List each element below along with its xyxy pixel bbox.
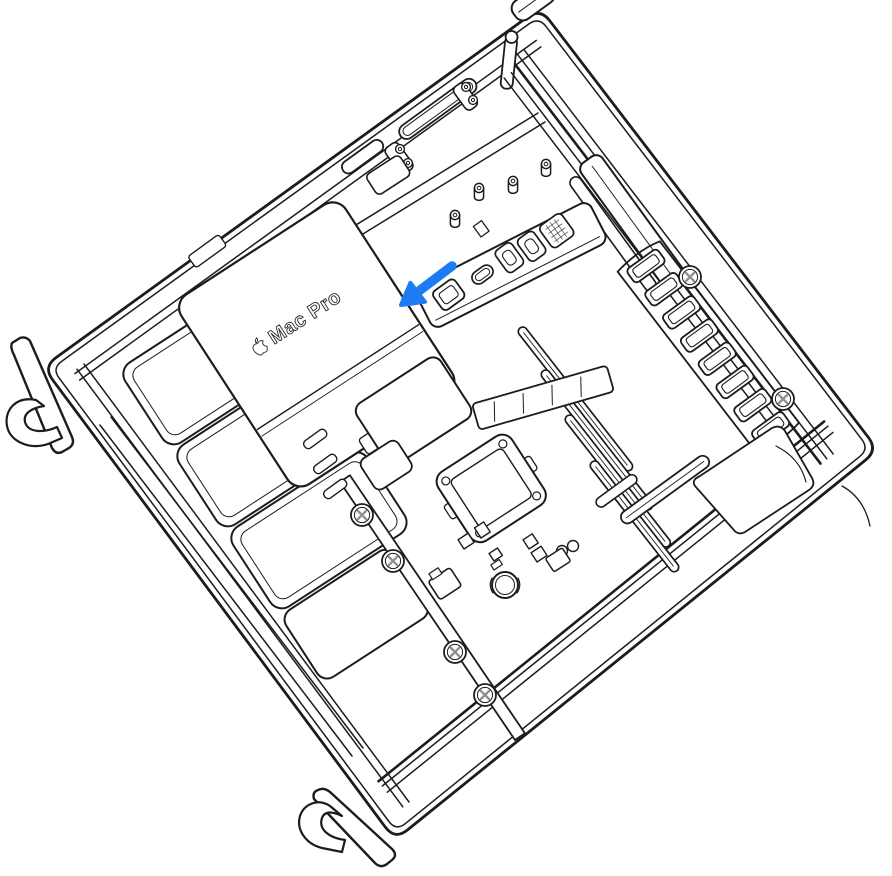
latch-screw bbox=[462, 83, 471, 92]
screw bbox=[382, 550, 404, 572]
screw bbox=[772, 388, 794, 410]
screw bbox=[474, 684, 496, 706]
mac-pro-internals-figure: Mac Pro bbox=[0, 0, 892, 876]
screw bbox=[444, 641, 466, 663]
corner-fillet-curve bbox=[842, 486, 870, 526]
screw bbox=[679, 266, 701, 288]
mac-pro-side-open-illustration: Mac Pro bbox=[0, 0, 892, 876]
screw bbox=[351, 504, 373, 526]
latch-screw bbox=[396, 145, 405, 154]
latch-screw bbox=[469, 96, 478, 105]
